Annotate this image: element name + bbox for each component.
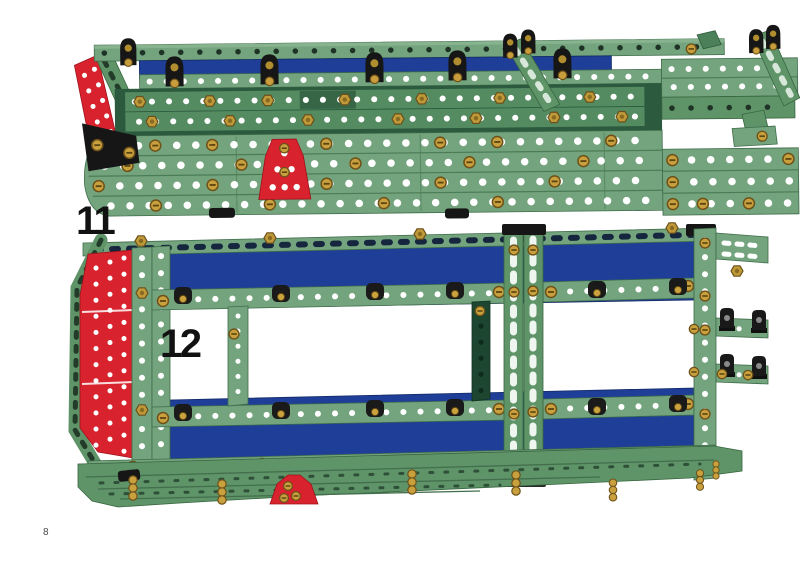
dark-vertical-strip xyxy=(472,301,490,401)
rear-extension-girder xyxy=(716,233,768,276)
side-strip-stack xyxy=(84,130,663,222)
step-label-12: 12 xyxy=(160,324,200,364)
inner-girders xyxy=(115,83,662,136)
frame-left-end xyxy=(75,240,170,465)
manual-page: 11 12 8 xyxy=(0,0,800,566)
step-11-illustration xyxy=(74,25,800,223)
frame-right-border xyxy=(694,228,716,480)
step-label-11: 11 xyxy=(76,201,113,241)
page-number: 8 xyxy=(43,527,49,538)
middle-vertical-strip xyxy=(228,306,248,406)
central-girder-pair xyxy=(500,224,546,487)
assembly-illustrations xyxy=(0,0,800,566)
